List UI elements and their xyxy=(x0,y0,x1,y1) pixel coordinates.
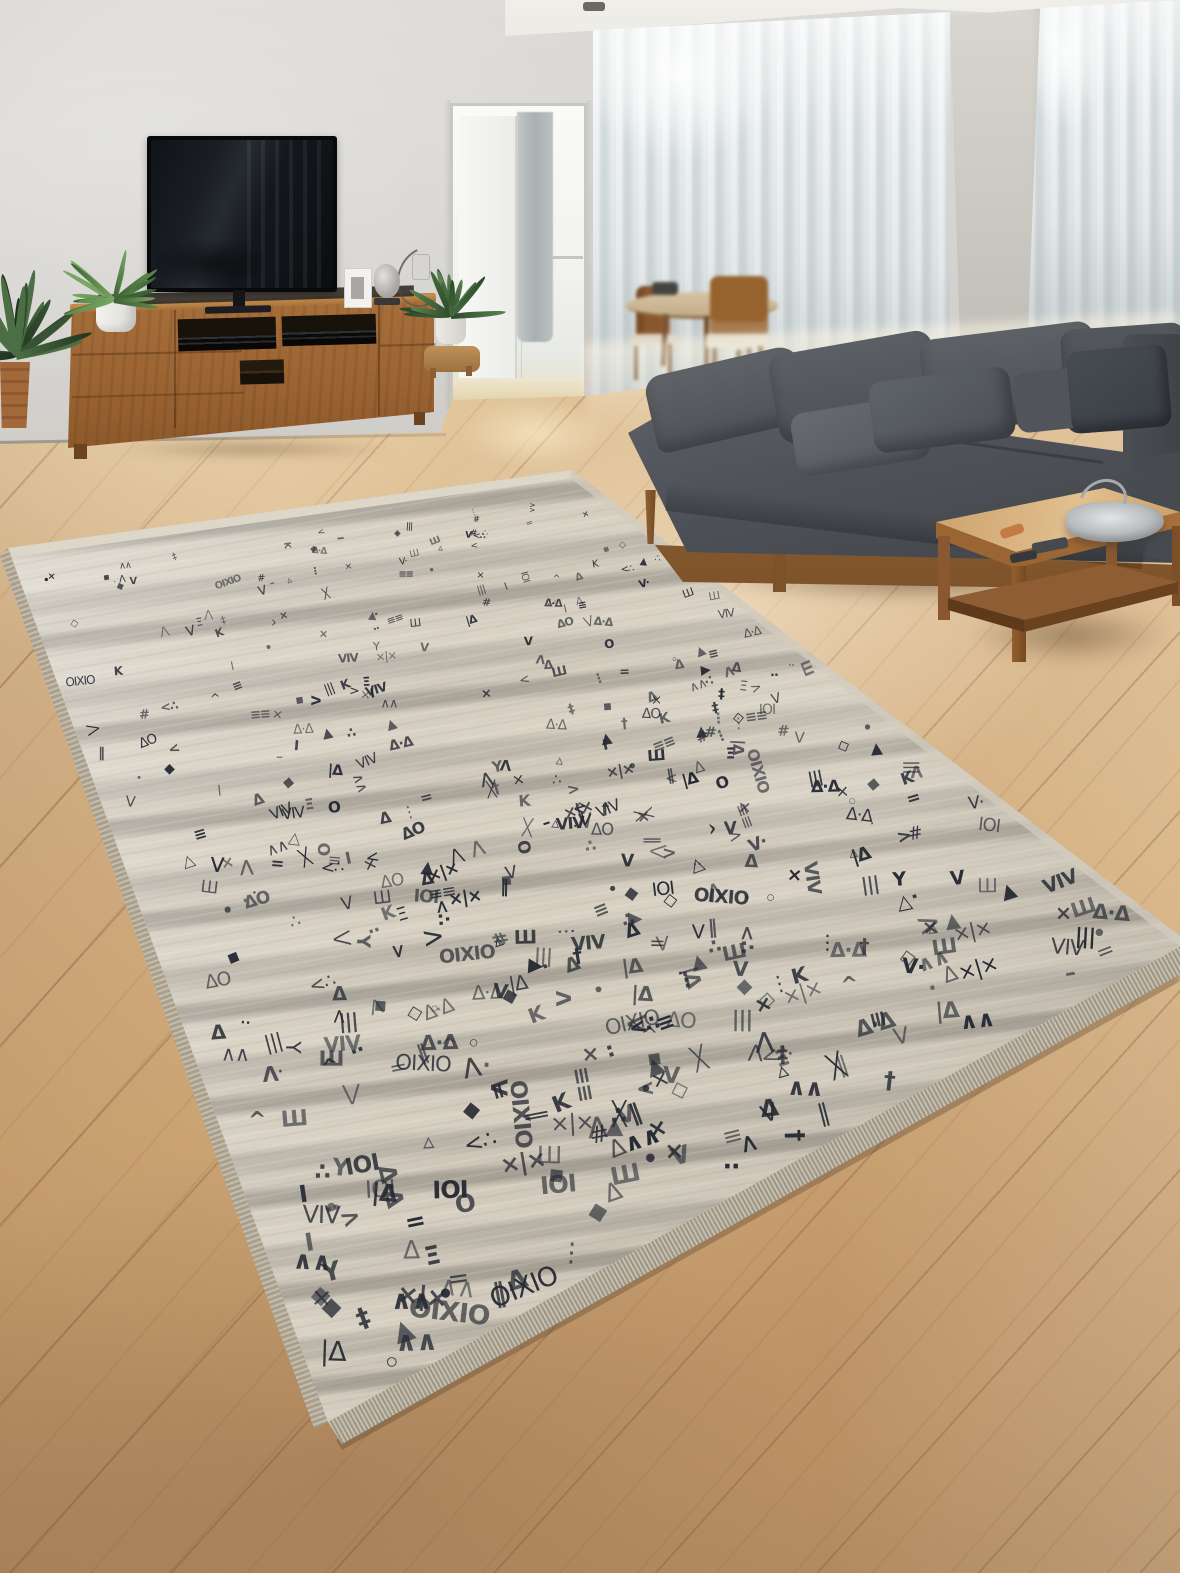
living-room-photo: IOI^Δ·Δ‡▵Δ◆⋁OIXIO◇^×|×Λ╳=|ΔIOI|ΔΔΔOΔ·Δ<∴… xyxy=(0,0,1180,1573)
photo-vignette xyxy=(0,0,1180,1573)
